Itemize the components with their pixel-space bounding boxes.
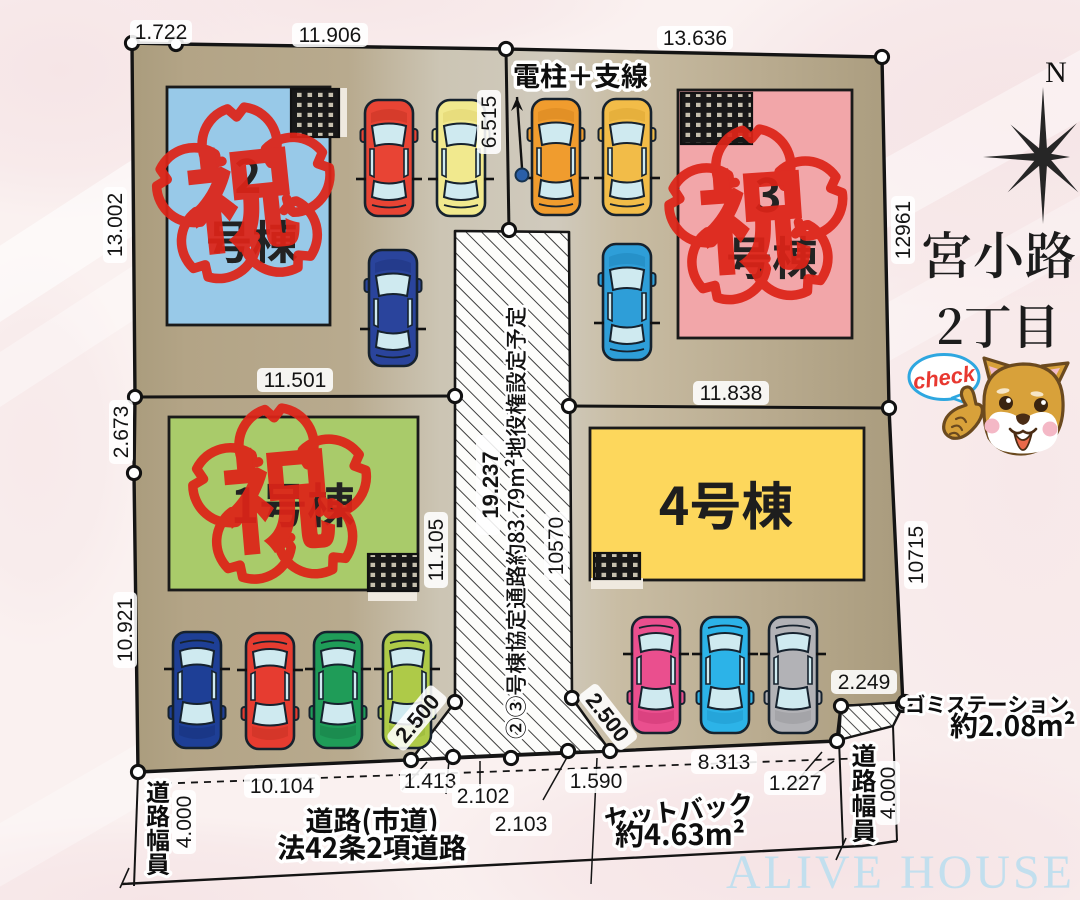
svg-text:11.838: 11.838 <box>700 382 763 405</box>
svg-text:4.000: 4.000 <box>173 796 196 849</box>
svg-text:11.105: 11.105 <box>425 519 448 582</box>
svg-text:2.673: 2.673 <box>110 406 133 459</box>
svg-text:12961: 12961 <box>892 201 915 259</box>
svg-text:ALIVE HOUSE: ALIVE HOUSE <box>726 846 1075 899</box>
svg-text:1.413: 1.413 <box>404 770 457 793</box>
svg-text:11.501: 11.501 <box>264 369 327 392</box>
svg-text:2.249: 2.249 <box>838 671 891 694</box>
svg-text:13.636: 13.636 <box>663 27 727 50</box>
svg-text:N: N <box>1045 56 1067 89</box>
svg-text:1.227: 1.227 <box>769 772 822 795</box>
svg-text:10.921: 10.921 <box>114 598 137 662</box>
svg-text:10570: 10570 <box>545 517 568 575</box>
svg-text:10715: 10715 <box>905 526 928 584</box>
svg-text:1.590: 1.590 <box>570 770 623 793</box>
svg-text:10.104: 10.104 <box>250 775 315 798</box>
svg-text:1.722: 1.722 <box>135 21 188 44</box>
svg-text:13.002: 13.002 <box>104 193 127 257</box>
svg-text:19.237: 19.237 <box>478 451 503 518</box>
svg-text:4.000: 4.000 <box>877 767 900 820</box>
svg-text:6.515: 6.515 <box>478 96 501 149</box>
svg-text:2.103: 2.103 <box>495 813 548 836</box>
svg-text:2.102: 2.102 <box>457 785 510 808</box>
svg-text:8.313: 8.313 <box>698 751 751 774</box>
svg-text:11.906: 11.906 <box>299 24 362 47</box>
